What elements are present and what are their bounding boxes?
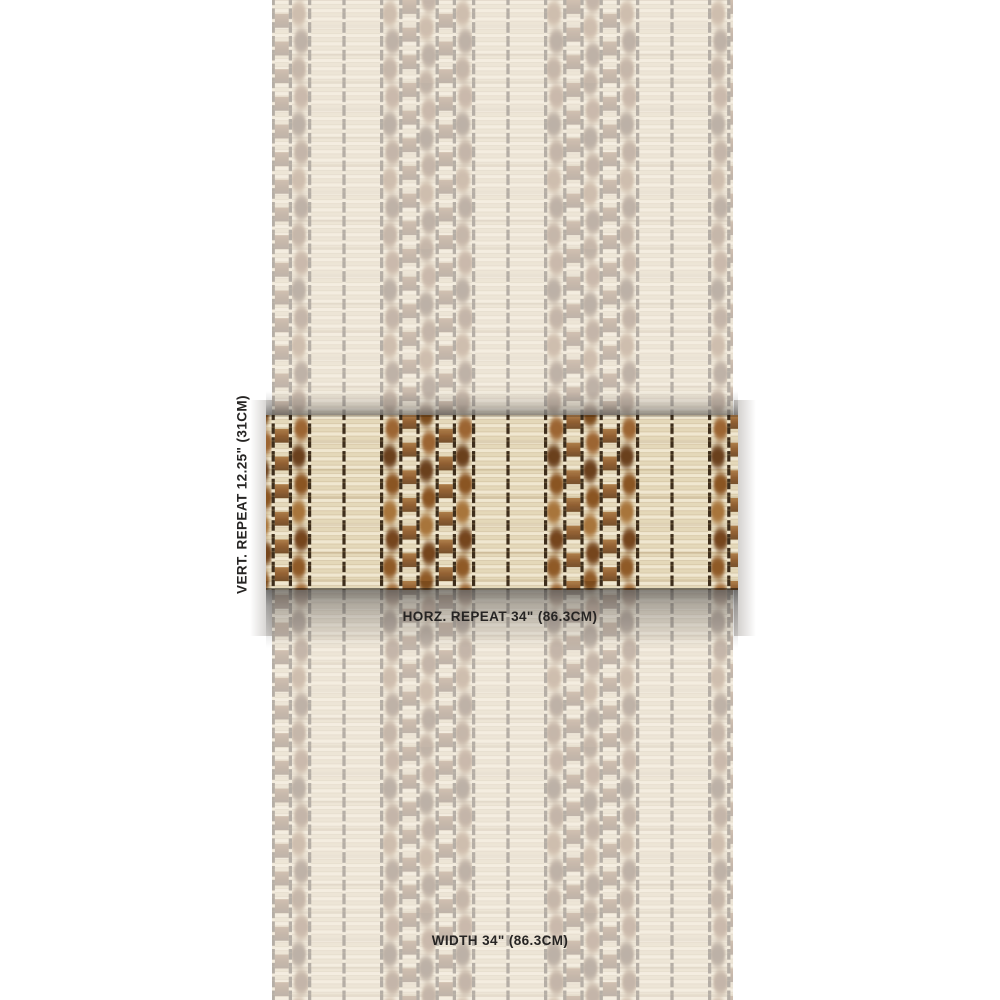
width-label: WIDTH 34" (86.3CM)	[300, 933, 700, 948]
band-top-edge	[266, 415, 738, 417]
product-swatch-page: VERT. REPEAT 12.25" (31CM) HORZ. REPEAT …	[0, 0, 1000, 1000]
band-shadow-top	[266, 391, 738, 415]
fabric-swatch-render	[0, 0, 1000, 1000]
horizontal-repeat-label: HORZ. REPEAT 34" (86.3CM)	[300, 609, 700, 624]
vertical-repeat-label: VERT. REPEAT 12.25" (31CM)	[235, 395, 250, 595]
repeat-highlight-band	[266, 415, 738, 590]
